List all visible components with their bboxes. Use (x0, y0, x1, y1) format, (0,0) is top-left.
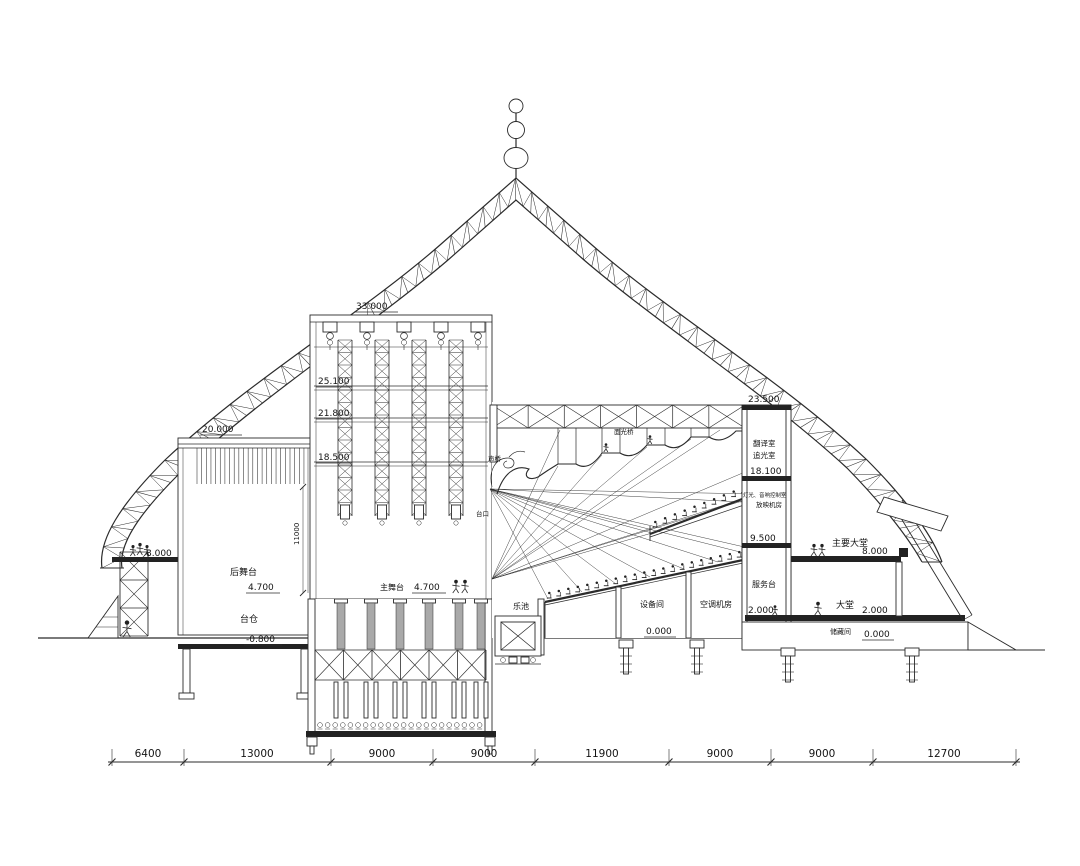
dim-9000-a: 9000 (369, 748, 396, 760)
plinth-band (742, 622, 968, 650)
elev-18100: 18.100 (750, 467, 782, 477)
elev-20000: 20.000 (202, 425, 234, 435)
label-sound-bridge: 声桥 (488, 454, 502, 463)
elev-9500: 9.500 (750, 534, 776, 544)
elev-18500: 18.500 (318, 453, 350, 463)
dim-9000-c: 9000 (707, 748, 734, 760)
drawing-canvas: 33.000 25.100 21.800 18.500 20.000 8.000… (0, 0, 1080, 866)
elev-2000-left: 2.000 (748, 606, 774, 616)
label-service-desk: 服务台 (752, 579, 776, 589)
label-proscenium: 台口 (476, 509, 489, 518)
elev-8000-left: 8.000 (146, 549, 172, 559)
label-followspot-room: 追光室 (753, 450, 776, 460)
spire (504, 99, 528, 178)
label-equipment-room: 设备间 (640, 599, 664, 609)
proscenium-wall (490, 405, 497, 462)
label-orchestra-pit: 乐池 (513, 601, 529, 611)
understage-machinery (306, 599, 496, 754)
elev-fly-tower-top: 33.000 (356, 302, 388, 312)
section-drawing: 33.000 25.100 21.800 18.500 20.000 8.000… (0, 0, 1080, 866)
dim-12700: 12700 (927, 748, 960, 760)
dim-9000-b: 9000 (471, 748, 498, 760)
label-storage: 储藏间 (830, 627, 851, 636)
label-translation-room: 翻译室 (753, 438, 776, 448)
label-projection-room: 放映机房 (756, 500, 782, 509)
elev-minus-0800: -0.800 (246, 635, 275, 645)
elev-2000-right: 2.000 (862, 606, 888, 616)
dim-11900: 11900 (585, 748, 618, 760)
elev-4700-main: 4.700 (414, 583, 440, 593)
label-front-light-bridge: 面光桥 (614, 427, 634, 436)
elev-23500: 23.500 (748, 395, 780, 405)
label-lobby: 大堂 (836, 599, 854, 611)
elev-25100: 25.100 (318, 377, 350, 387)
dim-6400: 6400 (135, 748, 162, 760)
elev-4700-rear: 4.700 (248, 583, 274, 593)
entry-ramp (968, 622, 1016, 650)
label-main-lobby-upper: 主要大堂 (832, 537, 868, 549)
dim-13000: 13000 (240, 748, 273, 760)
label-stage-basement: 台仓 (240, 613, 258, 625)
dim-9000-d: 9000 (809, 748, 836, 760)
label-ac-plant-room: 空调机房 (700, 599, 732, 609)
dim-stage-height: 11000 (293, 523, 301, 545)
elev-0000-right: 0.000 (864, 630, 890, 640)
elev-21800: 21.800 (318, 409, 350, 419)
elev-0000-mid: 0.000 (646, 627, 672, 637)
label-control-room: 灯光、音响控制室 (743, 491, 787, 499)
label-main-stage: 主舞台 (380, 582, 404, 592)
label-rear-stage: 后舞台 (230, 566, 257, 578)
dimension-line: 6400 13000 9000 9000 11900 9000 9000 127… (108, 748, 1020, 766)
